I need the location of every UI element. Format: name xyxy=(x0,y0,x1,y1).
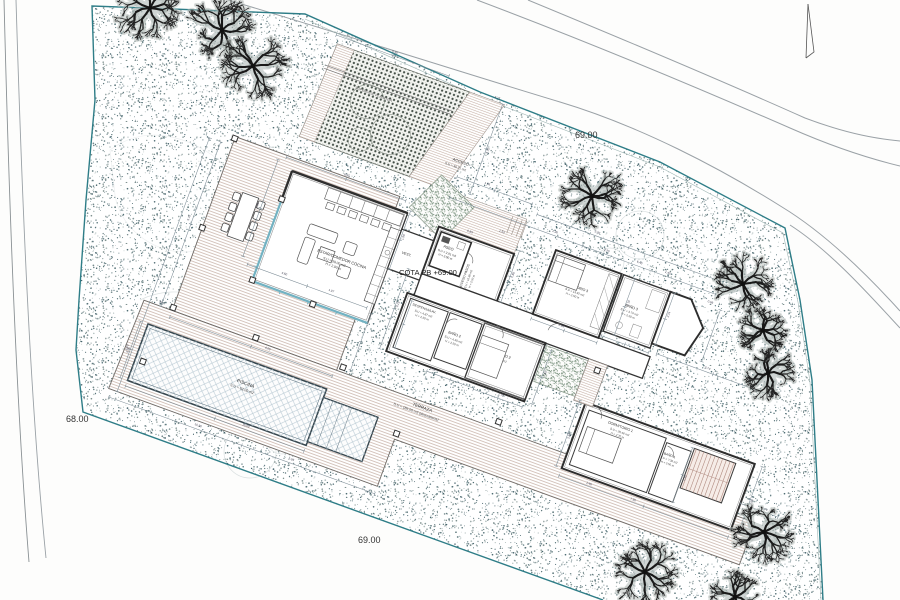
svg-text:69.00: 69.00 xyxy=(358,535,381,545)
svg-text:68.00: 68.00 xyxy=(66,414,89,424)
svg-text:COTA PB +69.00: COTA PB +69.00 xyxy=(399,268,457,277)
svg-text:69.00: 69.00 xyxy=(575,130,598,140)
